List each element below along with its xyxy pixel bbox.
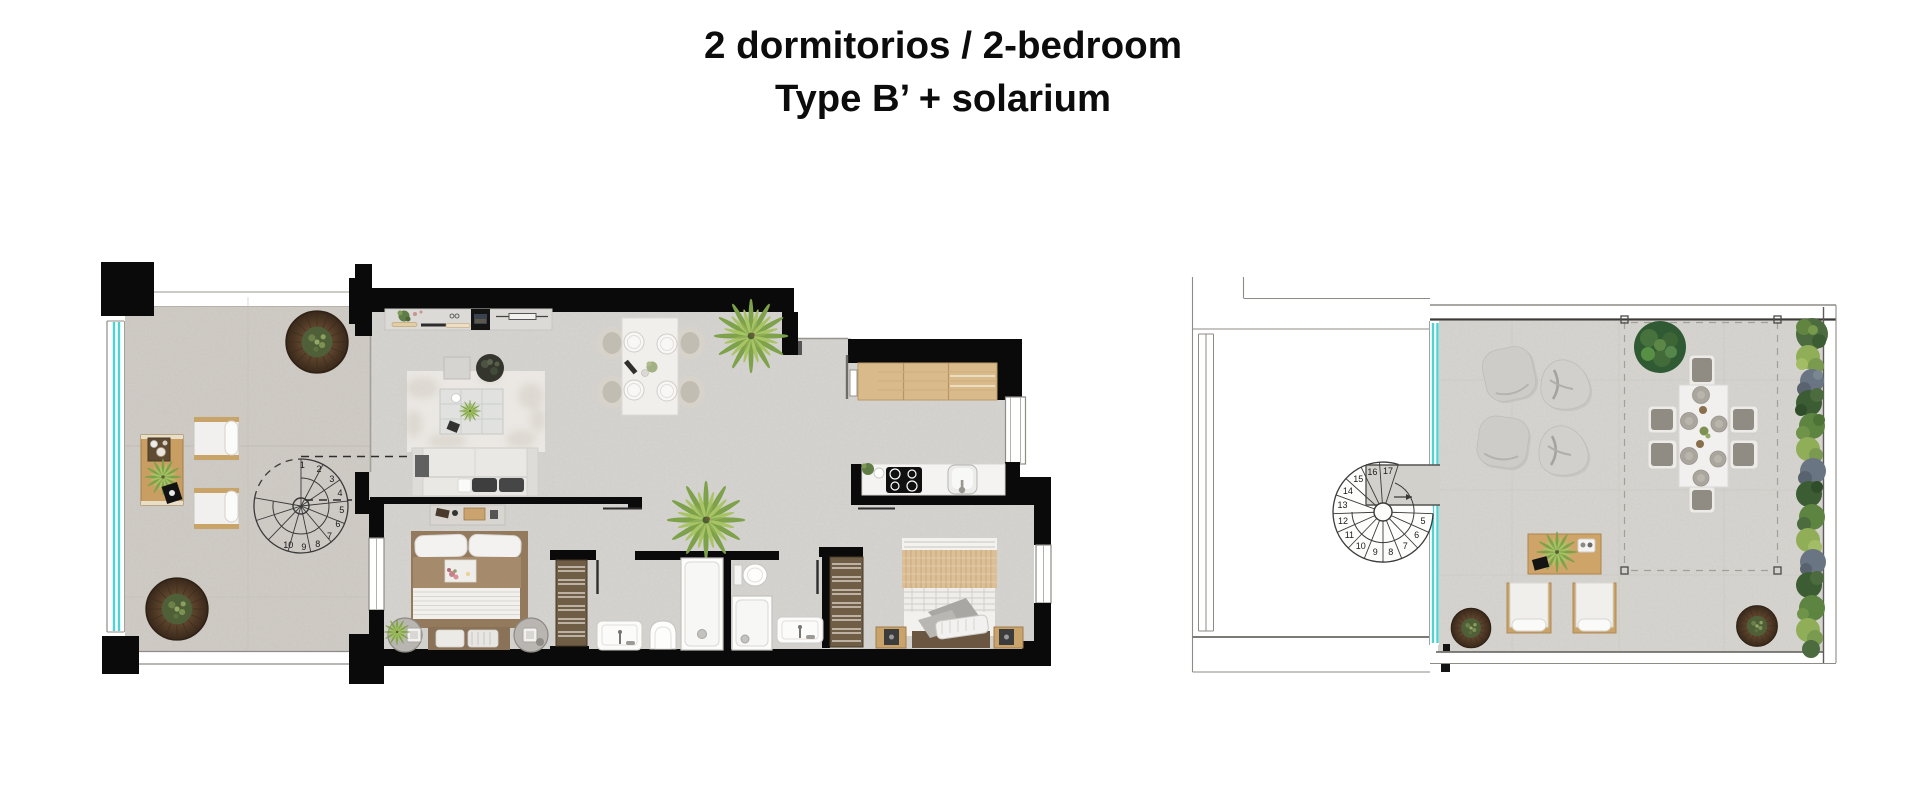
svg-text:8: 8 <box>315 539 320 549</box>
svg-text:2: 2 <box>316 464 321 474</box>
svg-text:12: 12 <box>1338 516 1348 526</box>
svg-text:13: 13 <box>1337 500 1347 510</box>
svg-text:14: 14 <box>1343 486 1353 496</box>
svg-text:3: 3 <box>329 474 334 484</box>
svg-text:8: 8 <box>1388 547 1393 557</box>
svg-text:17: 17 <box>1383 466 1393 476</box>
svg-text:4: 4 <box>337 488 342 498</box>
svg-text:1: 1 <box>300 460 305 470</box>
svg-text:15: 15 <box>1353 474 1363 484</box>
svg-text:9: 9 <box>301 542 306 552</box>
svg-text:7: 7 <box>327 531 332 541</box>
svg-text:2 dormitorios / 2-bedroom: 2 dormitorios / 2-bedroom <box>704 25 1182 67</box>
svg-text:6: 6 <box>1414 530 1419 540</box>
svg-text:7: 7 <box>1403 541 1408 551</box>
svg-text:5: 5 <box>339 505 344 515</box>
svg-text:5: 5 <box>1420 516 1425 526</box>
svg-text:11: 11 <box>1345 530 1354 540</box>
svg-text:10: 10 <box>283 540 293 550</box>
svg-text:Type B’ + solarium: Type B’ + solarium <box>775 78 1111 120</box>
svg-text:10: 10 <box>1356 541 1366 551</box>
svg-text:9: 9 <box>1373 547 1378 557</box>
svg-text:6: 6 <box>335 519 340 529</box>
svg-text:16: 16 <box>1367 467 1377 477</box>
